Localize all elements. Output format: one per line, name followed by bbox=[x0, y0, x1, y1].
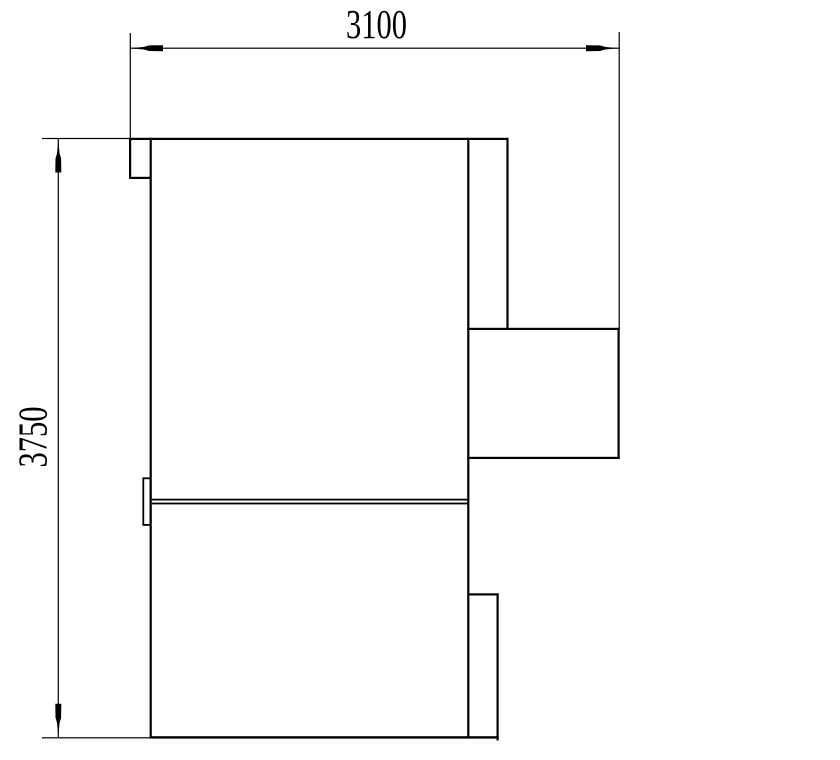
svg-text:3100: 3100 bbox=[346, 1, 407, 47]
svg-text:3750: 3750 bbox=[10, 407, 56, 468]
